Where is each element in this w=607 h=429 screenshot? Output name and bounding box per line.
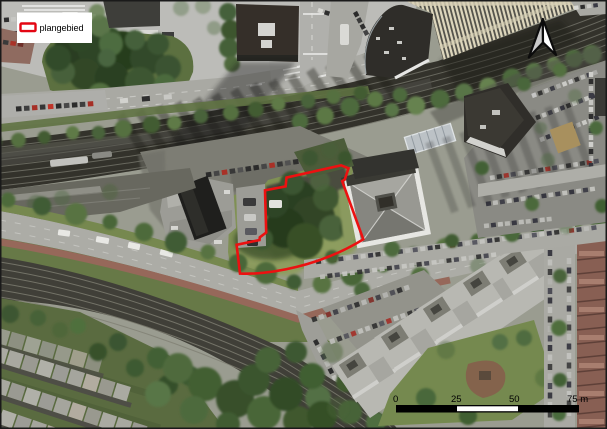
svg-text:50: 50 bbox=[509, 394, 520, 405]
svg-text:75 m: 75 m bbox=[567, 394, 588, 405]
svg-text:25: 25 bbox=[451, 394, 462, 405]
svg-text:plangebied: plangebied bbox=[40, 23, 84, 33]
svg-text:0: 0 bbox=[393, 394, 398, 405]
